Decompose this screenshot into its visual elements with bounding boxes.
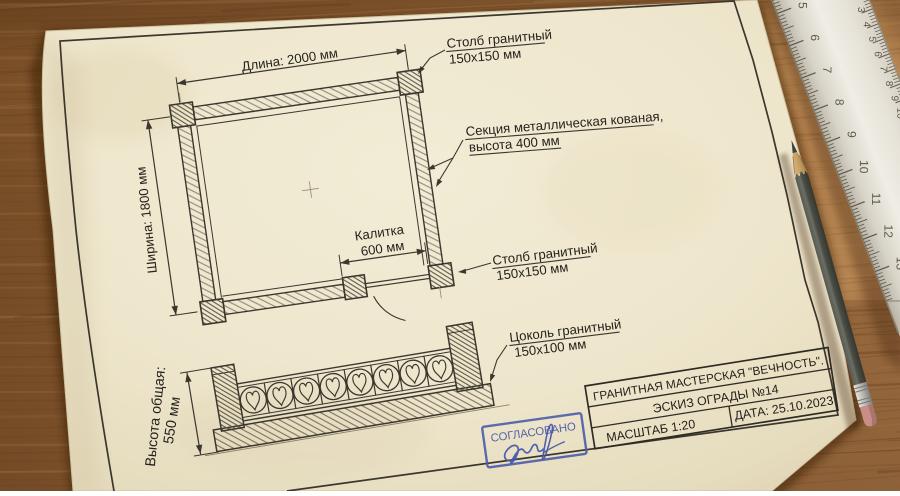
- svg-text:5: 5: [796, 2, 810, 9]
- svg-text:7: 7: [820, 66, 834, 73]
- svg-text:7: 7: [877, 66, 888, 72]
- svg-text:8: 8: [832, 99, 846, 106]
- svg-text:9: 9: [889, 95, 900, 101]
- svg-text:3: 3: [855, 7, 866, 13]
- svg-text:12: 12: [881, 224, 895, 238]
- svg-text:8: 8: [883, 81, 894, 87]
- svg-text:5: 5: [866, 36, 877, 42]
- svg-text:4: 4: [861, 22, 872, 28]
- svg-text:9: 9: [845, 131, 859, 138]
- svg-text:10: 10: [894, 107, 900, 119]
- svg-text:6: 6: [808, 34, 822, 41]
- svg-text:13: 13: [894, 257, 900, 271]
- svg-text:6: 6: [872, 51, 883, 57]
- svg-text:10: 10: [857, 160, 871, 174]
- svg-text:11: 11: [869, 193, 883, 206]
